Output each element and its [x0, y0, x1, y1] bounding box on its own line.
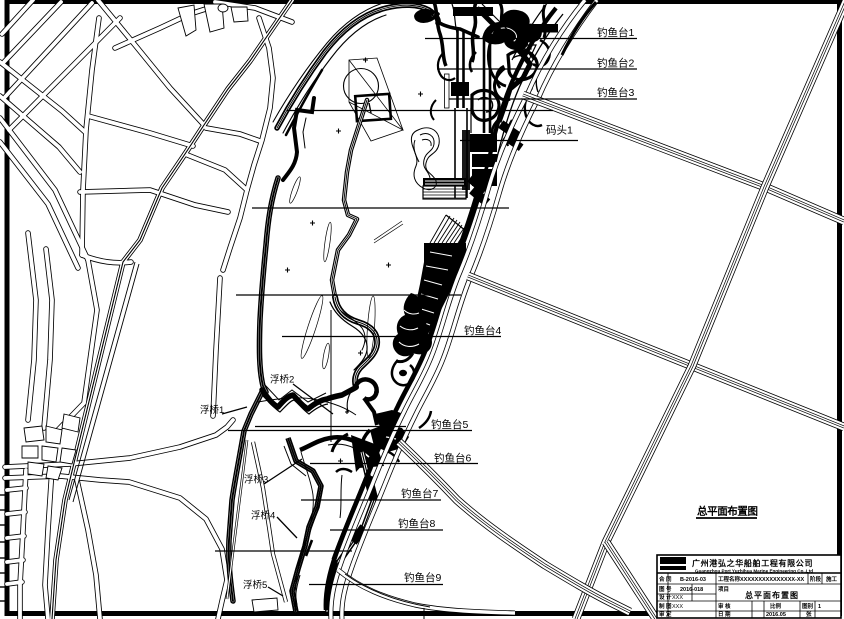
svg-text:钓鱼台4: 钓鱼台4	[464, 324, 501, 337]
svg-text:图别: 图别	[802, 602, 814, 610]
svg-text:XXX: XXX	[672, 595, 683, 601]
svg-text:钓鱼台5: 钓鱼台5	[431, 418, 468, 431]
svg-text:项目: 项目	[718, 585, 729, 593]
svg-text:设 计: 设 计	[659, 593, 672, 601]
svg-text:2016-018: 2016-018	[680, 587, 703, 593]
svg-text:码头1: 码头1	[546, 125, 573, 137]
svg-text:Guangzhou Port Yuzhihua Marine: Guangzhou Port Yuzhihua Marine Engineeri…	[695, 569, 813, 574]
svg-text:钓鱼台3: 钓鱼台3	[597, 86, 634, 99]
svg-text:总平面布置图: 总平面布置图	[697, 505, 758, 518]
svg-text:总平面布置图: 总平面布置图	[745, 590, 799, 600]
svg-text:浮桥2: 浮桥2	[270, 374, 294, 386]
svg-text:2016.05: 2016.05	[766, 612, 786, 618]
svg-text:广州港弘之华船舶工程有限公司: 广州港弘之华船舶工程有限公司	[692, 558, 813, 568]
svg-text:XXX: XXX	[672, 604, 683, 610]
svg-text:B-2016-03: B-2016-03	[680, 577, 706, 583]
svg-text:合 同: 合 同	[659, 575, 672, 583]
svg-text:施工: 施工	[826, 575, 838, 583]
svg-text:钓鱼台7: 钓鱼台7	[401, 487, 438, 500]
svg-text:制 图: 制 图	[659, 602, 672, 610]
svg-text:浮桥1: 浮桥1	[200, 404, 224, 416]
svg-text:钓鱼台2: 钓鱼台2	[597, 57, 634, 70]
svg-text:比例: 比例	[770, 602, 782, 610]
svg-text:1: 1	[818, 604, 821, 610]
svg-text:浮桥3: 浮桥3	[244, 474, 268, 486]
svg-text:阶段: 阶段	[810, 575, 822, 583]
svg-text:钓鱼台9: 钓鱼台9	[404, 571, 441, 584]
svg-text:浮桥4: 浮桥4	[251, 510, 275, 522]
svg-text:工程名称XXXXXXXXXXXXXXX-XX: 工程名称XXXXXXXXXXXXXXX-XX	[718, 575, 805, 583]
svg-text:审 定: 审 定	[659, 610, 672, 618]
svg-text:图 号: 图 号	[659, 585, 672, 593]
svg-text:日 期: 日 期	[718, 610, 731, 618]
svg-text:审 核: 审 核	[718, 602, 731, 610]
svg-text:钓鱼台8: 钓鱼台8	[398, 517, 435, 530]
svg-text:张: 张	[806, 610, 812, 618]
svg-text:钓鱼台1: 钓鱼台1	[597, 26, 634, 39]
svg-text:浮桥5: 浮桥5	[243, 579, 267, 591]
svg-text:钓鱼台6: 钓鱼台6	[434, 452, 471, 465]
